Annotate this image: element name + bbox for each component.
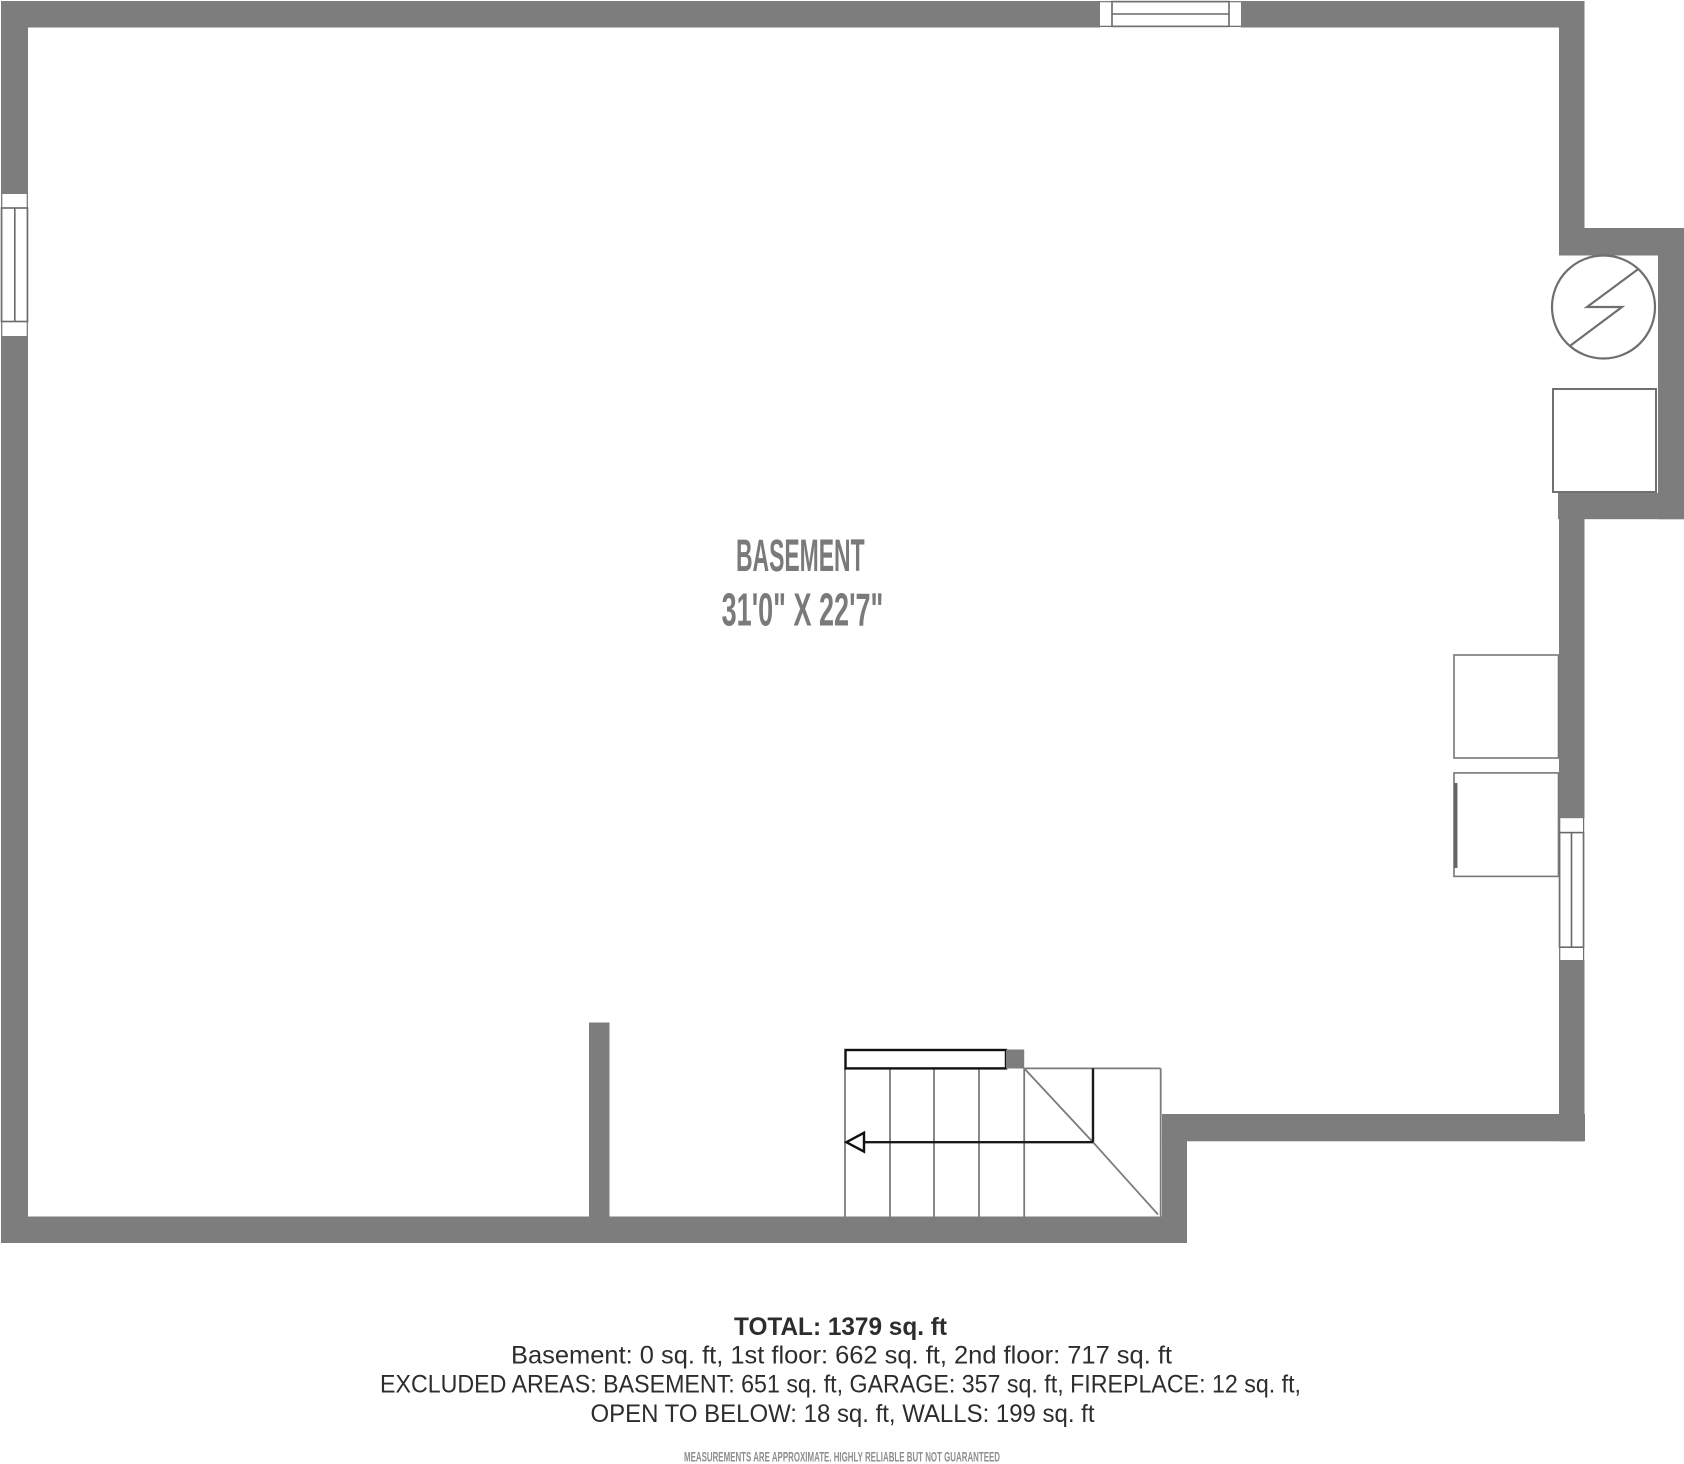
svg-text:OPEN TO BELOW: 18 sq. ft, WALL: OPEN TO BELOW: 18 sq. ft, WALLS: 199 sq.… [591, 1400, 1095, 1428]
svg-text:BASEMENT: BASEMENT [736, 530, 865, 581]
svg-text:EXCLUDED AREAS: BASEMENT: 651: EXCLUDED AREAS: BASEMENT: 651 sq. ft, GA… [380, 1370, 1301, 1398]
svg-text:MEASUREMENTS ARE APPROXIMATE.: MEASUREMENTS ARE APPROXIMATE. HIGHLY REL… [684, 1448, 1000, 1464]
svg-text:Basement: 0 sq. ft, 1st floor:: Basement: 0 sq. ft, 1st floor: 662 sq. f… [511, 1341, 1172, 1369]
svg-text:TOTAL: 1379 sq. ft: TOTAL: 1379 sq. ft [734, 1313, 948, 1341]
svg-text:31'0" X 22'7": 31'0" X 22'7" [722, 584, 884, 636]
